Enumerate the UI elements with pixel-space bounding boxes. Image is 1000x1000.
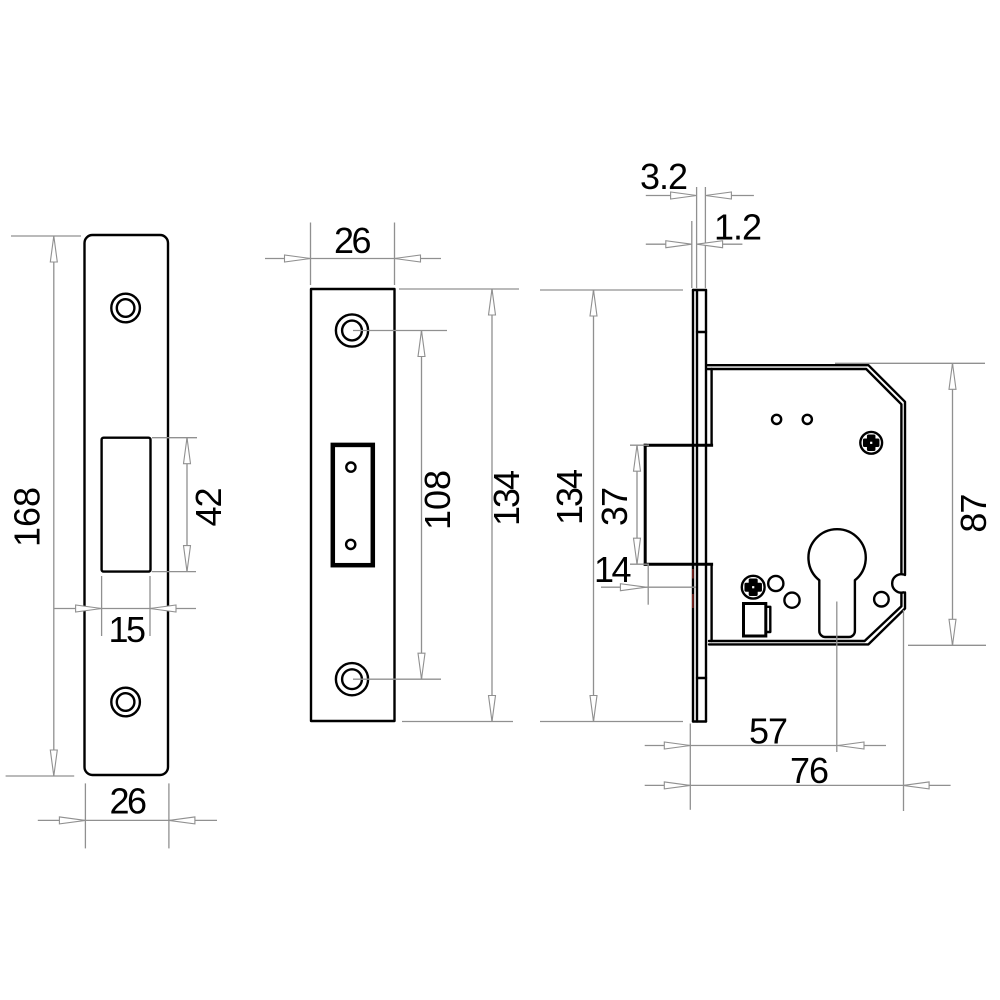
svg-text:57: 57	[749, 711, 787, 752]
svg-text:134: 134	[486, 471, 527, 526]
svg-text:14: 14	[594, 549, 631, 590]
svg-text:26: 26	[334, 220, 371, 261]
svg-text:168: 168	[6, 487, 47, 547]
svg-text:15: 15	[108, 609, 145, 650]
svg-text:37: 37	[594, 488, 635, 526]
svg-text:1.2: 1.2	[714, 207, 761, 248]
svg-text:108: 108	[417, 470, 458, 530]
svg-text:42: 42	[188, 488, 229, 526]
svg-text:3.2: 3.2	[640, 156, 687, 197]
svg-text:134: 134	[549, 470, 590, 525]
svg-text:87: 87	[953, 495, 994, 533]
svg-text:76: 76	[790, 750, 828, 791]
svg-text:26: 26	[109, 781, 146, 822]
